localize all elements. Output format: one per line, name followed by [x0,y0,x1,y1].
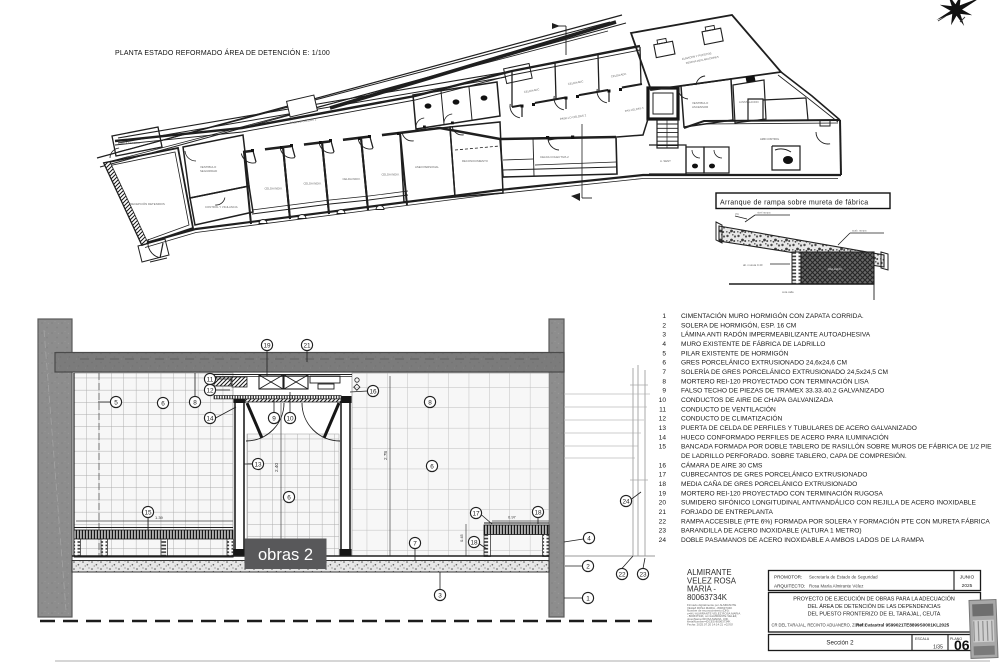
svg-text:DEL PUESTO FRONTERIZO DE EL TA: DEL PUESTO FRONTERIZO DE EL TARAJAL, CEU… [808,612,941,618]
svg-text:obras 2: obras 2 [258,546,313,564]
svg-text:1: 1 [662,313,666,320]
svg-text:14: 14 [659,434,667,441]
svg-text:SALA ESPERA: SALA ESPERA [120,141,140,145]
svg-text:21: 21 [659,509,667,516]
svg-text:16: 16 [659,462,667,469]
svg-text:CUBRECANTOS DE GRES PORCELÁNIC: CUBRECANTOS DE GRES PORCELÁNICO EXTRUSIO… [681,470,867,479]
svg-text:Secretaría de Estado de Seguri: Secretaría de Estado de Seguridad [809,575,878,580]
svg-text:6: 6 [662,360,666,367]
svg-text:BARANDILLA DE ACERO INOXIDABLE: BARANDILLA DE ACERO INOXIDABLE (ALTURA 1… [681,528,862,535]
svg-text:AMD CONTROL: AMD CONTROL [760,137,780,141]
svg-text:21: 21 [303,342,311,349]
svg-text:A.INSTALACION: A.INSTALACION [739,100,759,104]
svg-text:alt. mureta 0.40: alt. mureta 0.40 [743,263,763,267]
svg-text:17: 17 [472,510,480,517]
svg-text:1: 1 [586,595,590,602]
svg-text:ESCALA: ESCALA [915,637,930,641]
svg-text:2.78: 2.78 [383,451,388,460]
svg-text:ARQUITECTO:: ARQUITECTO: [774,584,805,589]
svg-text:7: 7 [662,369,666,376]
svg-text:16: 16 [369,388,377,395]
svg-text:CONDUCTO DE CLIMATIZACIÓN: CONDUCTO DE CLIMATIZACIÓN [681,414,782,423]
svg-text:PILAR EXISTENTE DE HORMIGÓN: PILAR EXISTENTE DE HORMIGÓN [681,348,789,357]
svg-text:7: 7 [413,540,417,547]
svg-text:18: 18 [659,481,667,488]
svg-text:17: 17 [659,472,667,479]
svg-text:HUECO CONFORMADO PERFILES DE A: HUECO CONFORMADO PERFILES DE ACERO PARA … [681,432,889,441]
svg-text:14: 14 [206,415,214,422]
svg-text:JUNIO: JUNIO [960,575,975,581]
svg-text:SEGURIDAD: SEGURIDAD [200,169,217,173]
svg-text:1.39: 1.39 [155,515,164,520]
svg-text:RECONOCIMIENTO: RECONOCIMIENTO [462,159,489,163]
svg-text:SOLERA DE HORMIGÓN, ESP. 16 CM: SOLERA DE HORMIGÓN, ESP. 16 CM [681,320,796,329]
svg-text:18: 18 [470,539,478,546]
svg-text:SUMIDERO SIFÓNICO LONGITUDINAL: SUMIDERO SIFÓNICO LONGITUDINAL ANTIVANDÁ… [681,498,977,507]
svg-text:CELDA INDIV.: CELDA INDIV. [382,173,400,177]
svg-text:1/35: 1/35 [933,645,943,651]
svg-text:PLANTA ESTADO REFORMADO ÁREA D: PLANTA ESTADO REFORMADO ÁREA DE DETENCIÓ… [115,48,330,57]
svg-text:19: 19 [263,342,271,349]
svg-text:0.97: 0.97 [508,515,517,520]
svg-text:CELDA INDIV.: CELDA INDIV. [304,182,322,186]
svg-text:19: 19 [659,490,667,497]
svg-text:4: 4 [662,341,666,348]
svg-text:SOLERÍA DE GRES PORCELÁNICO EX: SOLERÍA DE GRES PORCELÁNICO EXTRUSIONADO… [681,367,888,376]
svg-text:FALSO TECHO DE PIEZAS DE TRAME: FALSO TECHO DE PIEZAS DE TRAMEX 33.33.40… [681,388,884,395]
svg-text:9: 9 [272,415,276,422]
svg-text:Arranque de rampa sobre mu: Arranque de rampa sobre mureta de fábric… [720,200,869,207]
svg-text:3: 3 [438,592,442,599]
svg-text:MORTERO REI-120 PROYECTADO CON: MORTERO REI-120 PROYECTADO CON TERMINACI… [681,376,869,385]
svg-text:ASCENSOR: ASCENSOR [692,105,708,109]
svg-text:6: 6 [287,494,291,501]
svg-text:15: 15 [144,509,152,516]
svg-text:nivel rampa: nivel rampa [757,211,771,215]
svg-text:11: 11 [659,406,666,413]
svg-text:80063734K: 80063734K [687,593,728,602]
svg-text:CELDA INDIV.: CELDA INDIV. [265,187,283,191]
svg-text:LÁMINA ANTI RADÓN IMPERMEABILI: LÁMINA ANTI RADÓN IMPERMEABILIZANTE AUTO… [681,330,871,339]
svg-text:MEDIA CAÑA DE GRES PORCELÁNICO: MEDIA CAÑA DE GRES PORCELÁNICO EXTRUSION… [681,479,857,488]
svg-text:0.45: 0.45 [459,533,464,542]
svg-text:6: 6 [161,400,165,407]
svg-text:CONDUCTO DE VENTILACIÓN: CONDUCTO DE VENTILACIÓN [681,404,776,413]
svg-text:CR DEL TARAJAL, RECINTO ADUANE: CR DEL TARAJAL, RECINTO ADUANERO, ZONA 2 [772,623,868,628]
svg-text:RELLENO: RELLENO [828,267,843,271]
svg-text:A. SENT: A. SENT [660,159,671,163]
svg-text:Ref Catastral 9599021TE8899S00: Ref Catastral 9599021TE8899S0001KL2025 [856,623,950,628]
svg-text:CELDA COLECTIVA 2: CELDA COLECTIVA 2 [540,155,569,159]
svg-text:DEL ÁREA DE DETENCIÓN DE LAS D: DEL ÁREA DE DETENCIÓN DE LAS DEPENDENCIA… [807,603,941,610]
svg-text:22: 22 [659,518,667,525]
svg-text:GRES PORCELÁNICO EXTRUSIONADO: GRES PORCELÁNICO EXTRUSIONADO 24,6x24,6 … [681,358,847,367]
svg-text:10: 10 [286,415,294,422]
svg-text:PROMOTOR:: PROMOTOR: [774,575,802,580]
svg-text:12: 12 [206,387,214,394]
svg-text:RAMPA ACCESIBLE (PTE 6%) FORMA: RAMPA ACCESIBLE (PTE 6%) FORMADA POR SOL… [681,516,990,525]
svg-text:Fecha: 2025.07.20 14:14:21 +02: Fecha: 2025.07.20 14:14:21 +02'00' [687,622,734,626]
svg-text:RECEPCIÓN DETENIDOS: RECEPCIÓN DETENIDOS [130,201,165,206]
svg-text:18: 18 [534,509,542,516]
svg-text:13: 13 [254,461,262,468]
svg-text:MURO EXISTENTE DE FÁBRICA DE L: MURO EXISTENTE DE FÁBRICA DE LADRILLO [681,339,825,348]
svg-text:PROYECTO DE EJECUCIÓN DE OBRAS: PROYECTO DE EJECUCIÓN DE OBRAS PARA LA A… [793,596,955,603]
svg-text:FORJADO DE ENTREPLANTA: FORJADO DE ENTREPLANTA [681,509,773,516]
svg-text:acab. rampa: acab. rampa [852,229,867,233]
svg-text:Sección 2: Sección 2 [826,640,854,647]
svg-text:DE LADRILLO PERFORADO. SOBRE T: DE LADRILLO PERFORADO. SOBRE TABLERO, CA… [681,451,907,460]
svg-text:CIMENTACIÓN MURO HORMIGÓN CON: CIMENTACIÓN MURO HORMIGÓN CON ZAPATA COR… [681,311,864,320]
svg-text:2: 2 [586,563,590,570]
svg-text:PUERTA DE CELDA DE PERFILES Y: PUERTA DE CELDA DE PERFILES Y TUBULARES … [681,425,917,432]
svg-text:22: 22 [618,571,626,578]
svg-text:15: 15 [659,444,667,451]
svg-text:DOBLE PASAMANOS DE ACERO INOXI: DOBLE PASAMANOS DE ACERO INOXIDABLE A AM… [681,537,925,544]
svg-text:24: 24 [622,498,630,505]
svg-text:BANCADA FORMADA POR DOBLE TABL: BANCADA FORMADA POR DOBLE TABLERO DE RAS… [681,442,992,451]
svg-text:3: 3 [662,332,666,339]
svg-text:2: 2 [662,322,666,329]
svg-text:MORTERO REI-120 PROYECTADO CON: MORTERO REI-120 PROYECTADO CON TERMINACI… [681,488,883,497]
svg-text:24: 24 [659,537,667,544]
svg-text:12: 12 [659,416,667,423]
svg-text:5.92: 5.92 [100,550,104,556]
svg-text:11: 11 [207,376,214,383]
svg-text:cota calle: cota calle [782,290,794,294]
svg-text:06: 06 [954,637,970,653]
svg-text:CONTROL Y VIGILANCIA: CONTROL Y VIGILANCIA [205,205,238,209]
svg-text:23: 23 [659,528,667,535]
svg-text:2025: 2025 [962,583,973,589]
svg-text:CELDA INDIV.: CELDA INDIV. [343,177,361,181]
svg-text:Rosa María Almirante Vélez: Rosa María Almirante Vélez [809,584,863,589]
svg-text:13: 13 [659,425,667,432]
svg-text:CÁMARA DE AIRE 30 CMS: CÁMARA DE AIRE 30 CMS [681,460,763,469]
svg-text:2.40: 2.40 [274,463,279,472]
svg-text:6: 6 [430,463,434,470]
svg-text:23: 23 [639,571,647,578]
svg-text:8: 8 [662,378,666,385]
svg-text:CONDUCTOS DE AIRE DE CHAPA GAL: CONDUCTOS DE AIRE DE CHAPA GALVANIZADA [681,397,834,404]
svg-text:20: 20 [659,500,667,507]
svg-text:5: 5 [662,350,666,357]
svg-text:5: 5 [114,399,118,406]
svg-text:4: 4 [587,535,591,542]
svg-text:10: 10 [659,397,667,404]
svg-text:8: 8 [428,399,432,406]
svg-text:ASEO PERSONAL: ASEO PERSONAL [415,165,439,169]
svg-text:8: 8 [193,399,197,406]
svg-text:9: 9 [662,388,666,395]
